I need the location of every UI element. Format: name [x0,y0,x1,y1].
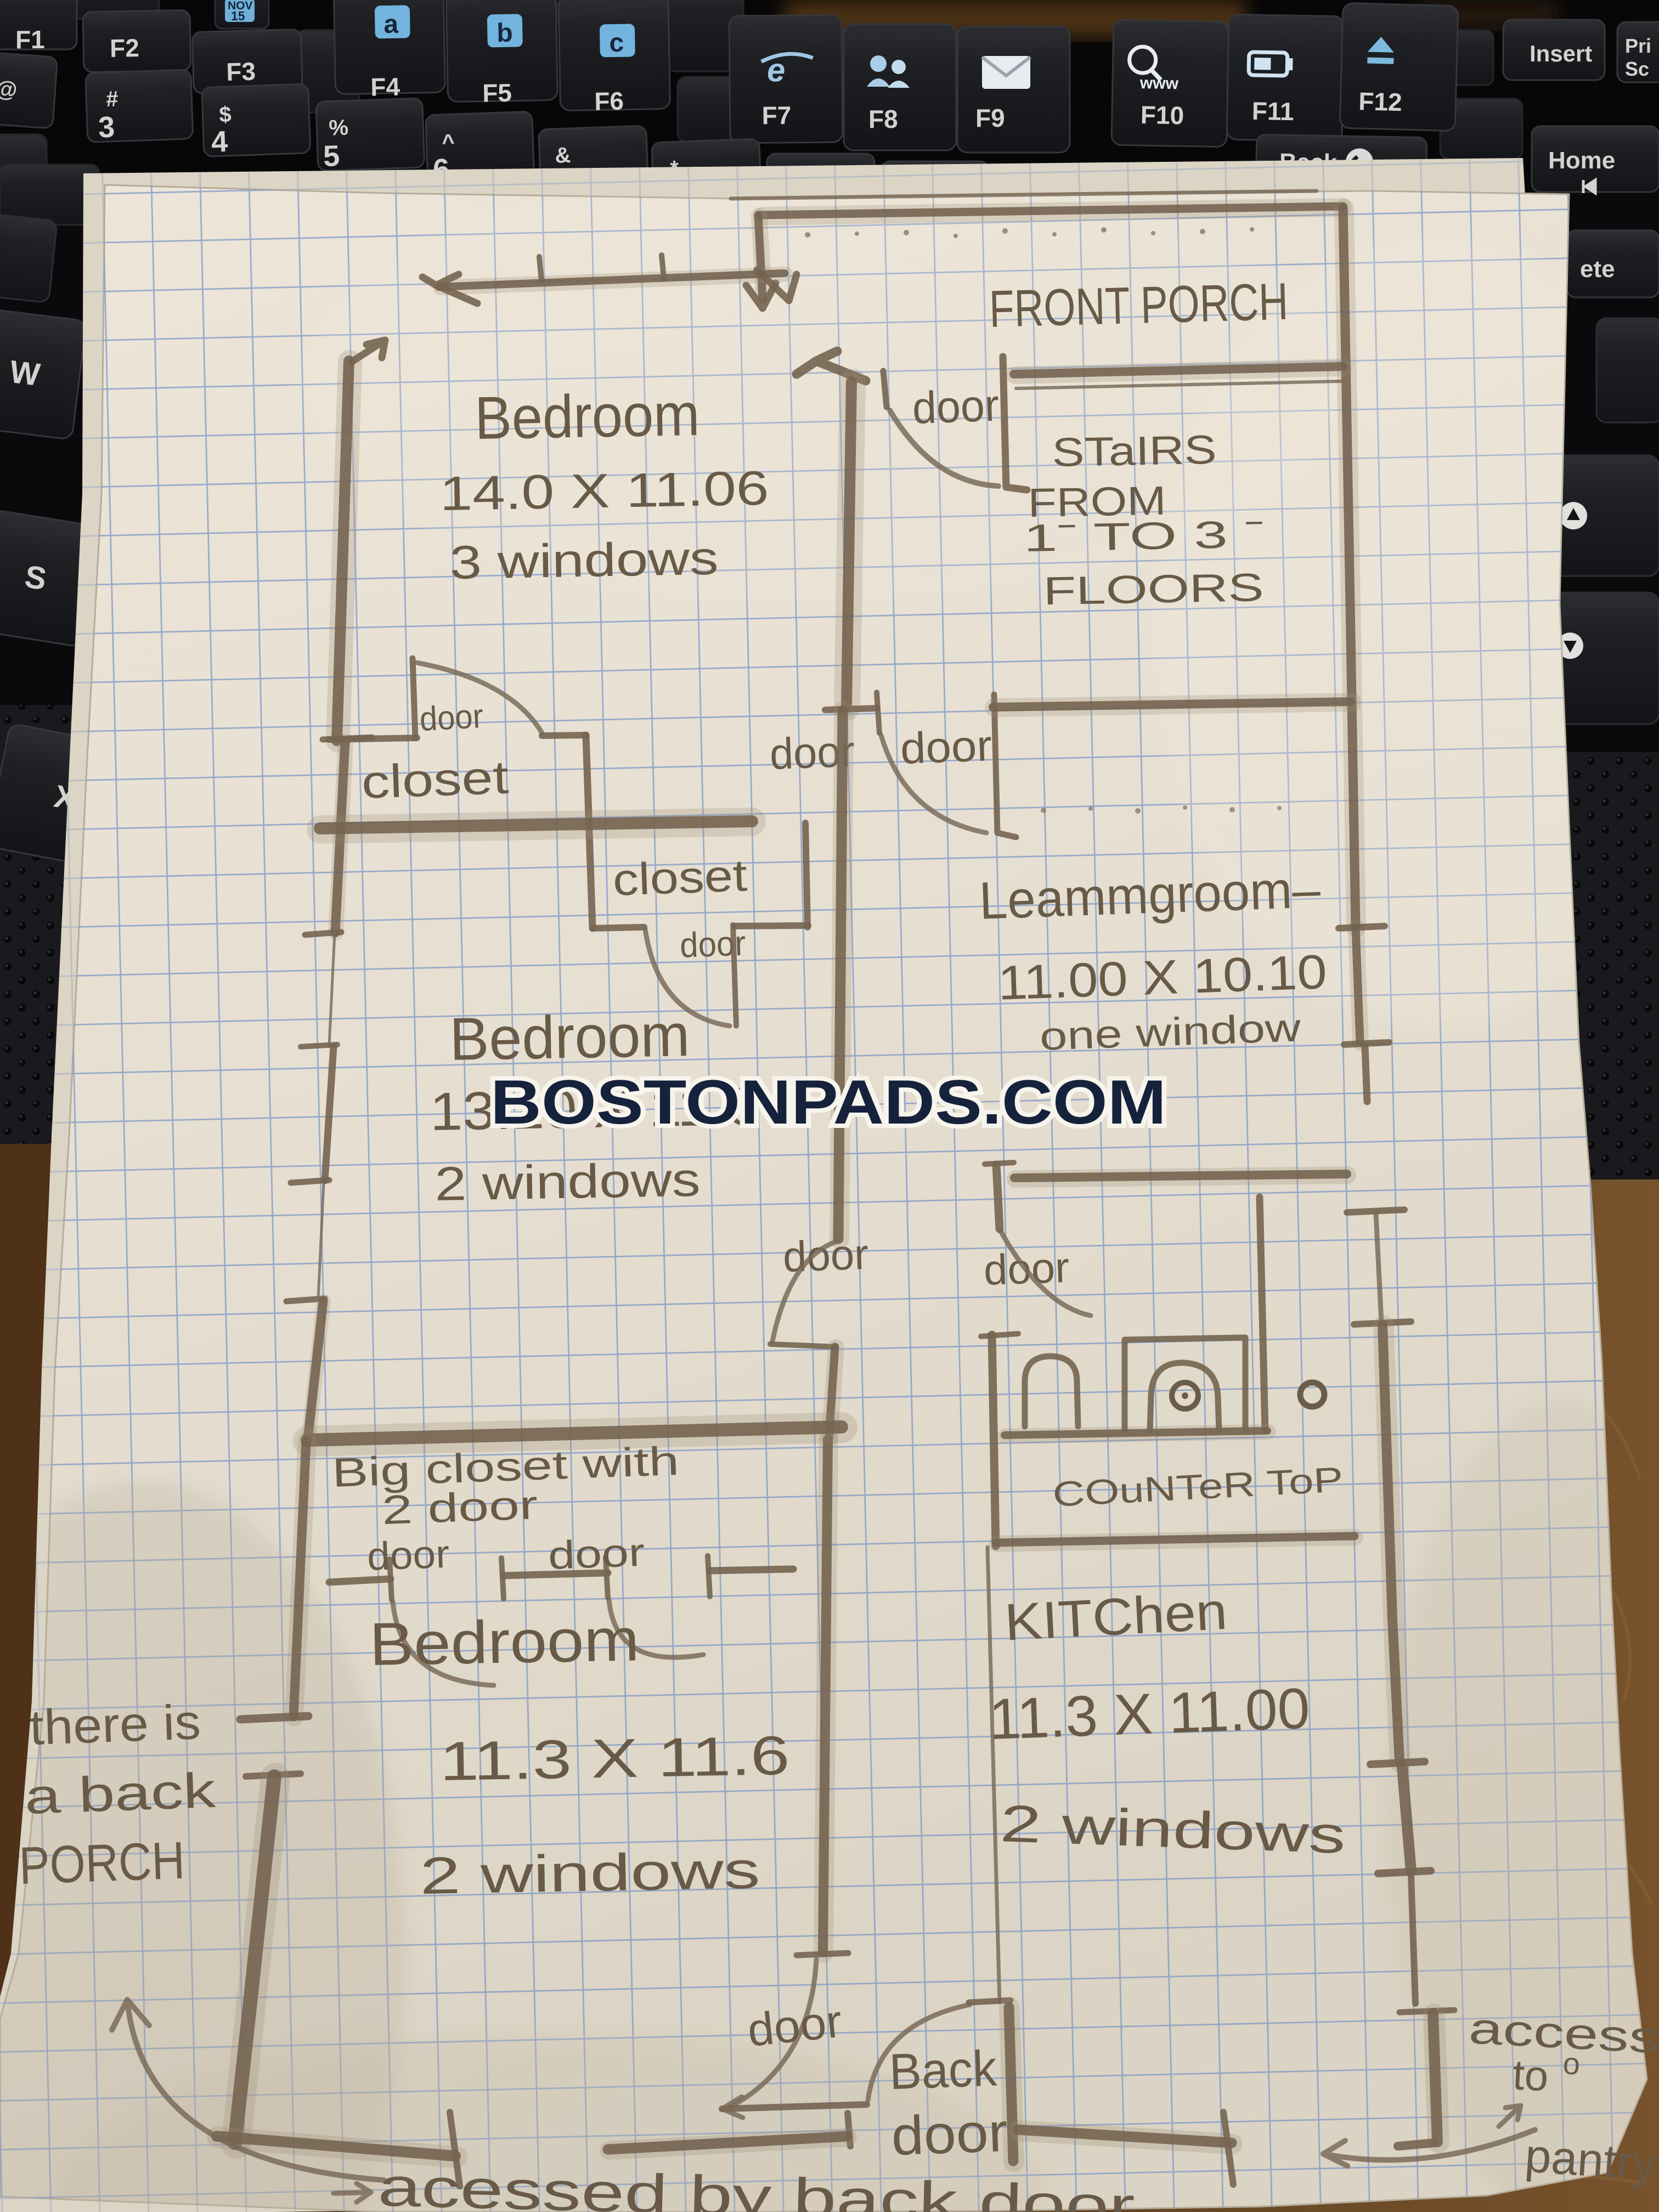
svg-text:4: 4 [211,125,228,159]
svg-text:@: @ [0,77,18,103]
svg-text:$: $ [219,103,232,127]
svg-text:STaIRS: STaIRS [1052,427,1217,475]
svg-text:Bedroom: Bedroom [474,381,700,452]
svg-text:F6: F6 [594,87,624,116]
svg-text:1ˉ TO 3 ˉ: 1ˉ TO 3 ˉ [1023,512,1265,560]
svg-text:a back: a back [24,1763,217,1825]
svg-text:c: c [609,29,624,58]
svg-text:Bedroom: Bedroom [369,1606,640,1678]
svg-text:door: door [890,2102,1009,2167]
svg-text:ete: ete [1580,256,1615,283]
svg-text:Leammgroom–: Leammgroom– [978,860,1322,930]
svg-text:F8: F8 [868,105,898,133]
svg-text:www: www [1139,74,1179,93]
svg-text:11.00 X 10.10: 11.00 X 10.10 [997,944,1328,1010]
svg-text:F7: F7 [761,101,791,129]
svg-text:W: W [8,354,42,393]
svg-text:15: 15 [231,9,245,23]
svg-text:o: o [1562,2046,1581,2081]
svg-text:F4: F4 [370,72,400,101]
svg-text:Bedroom: Bedroom [449,1001,690,1073]
svg-text:3 windows: 3 windows [449,532,719,589]
svg-text:Sc: Sc [1625,58,1649,80]
svg-text:FRONT PORCH: FRONT PORCH [989,273,1289,338]
svg-text:Pri: Pri [1625,35,1651,57]
svg-text:door: door [366,1532,450,1579]
svg-text:11.3 X 11.00: 11.3 X 11.00 [988,1677,1311,1752]
svg-text:door: door [911,381,1000,433]
svg-text:Home: Home [1548,147,1615,174]
svg-text:BOSTONPADS.COM: BOSTONPADS.COM [490,1068,1166,1137]
svg-text:PORCH: PORCH [18,1831,186,1895]
svg-text:to: to [1511,2050,1550,2100]
svg-text:2 door: 2 door [381,1482,539,1533]
svg-text:KITChen: KITChen [1003,1582,1229,1652]
svg-text:F1: F1 [15,25,45,54]
svg-text:closet: closet [612,850,748,905]
svg-text:pantry: pantry [1523,2129,1658,2191]
svg-text:2 windows: 2 windows [420,1841,761,1905]
svg-text:there is: there is [29,1695,201,1756]
svg-text:2 windows: 2 windows [435,1153,701,1211]
svg-text:door: door [745,1995,844,2056]
svg-text:&: & [555,143,571,168]
svg-text:F5: F5 [482,78,512,108]
svg-text:b: b [496,19,513,48]
svg-text:F12: F12 [1358,87,1403,116]
svg-text:2 windows: 2 windows [999,1795,1346,1865]
svg-text:F2: F2 [110,33,140,63]
svg-text:#: # [106,87,119,111]
svg-text:door: door [548,1531,646,1578]
svg-text:3: 3 [98,111,115,144]
svg-text:5: 5 [323,139,340,173]
svg-text:door: door [899,721,992,773]
svg-text:11.3 X 11.6: 11.3 X 11.6 [439,1725,790,1792]
svg-text:a: a [383,10,399,39]
svg-text:one window: one window [1039,1006,1302,1059]
svg-text:door: door [419,697,484,738]
svg-text:Insert: Insert [1530,41,1592,66]
svg-text:Back: Back [888,2040,998,2100]
svg-text:^: ^ [442,130,455,155]
svg-text:F9: F9 [975,104,1005,132]
svg-text:FLOORS: FLOORS [1043,566,1264,613]
svg-text:F11: F11 [1251,97,1294,126]
svg-text:%: % [329,116,349,140]
svg-text:F10: F10 [1141,100,1184,129]
svg-text:F3: F3 [226,57,256,86]
svg-text:closet: closet [360,752,509,809]
svg-text:14.0 X 11.06: 14.0 X 11.06 [439,461,770,521]
